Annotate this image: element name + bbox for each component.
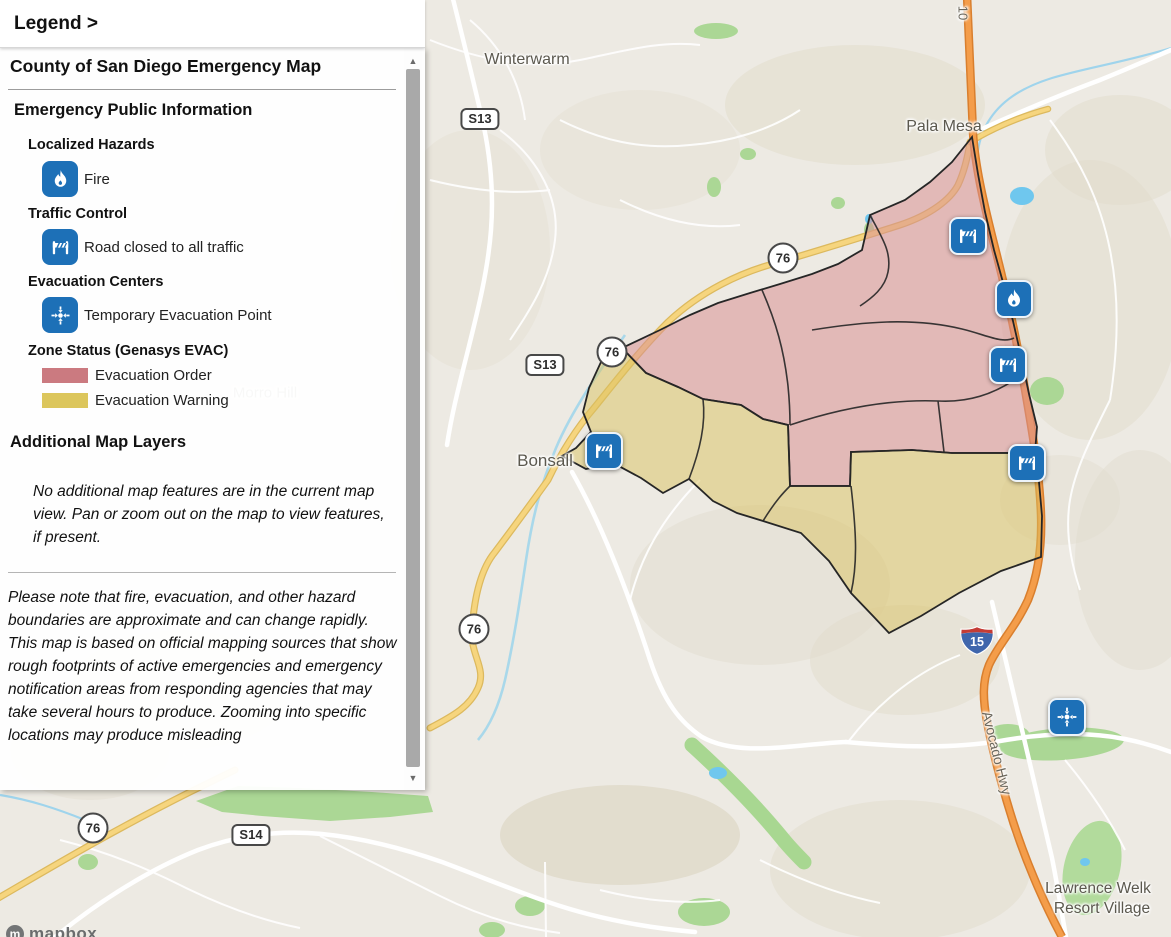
legend-title: Legend > <box>14 13 98 35</box>
svg-text:15: 15 <box>970 635 984 649</box>
legend-item-road-closed: Road closed to all traffic <box>84 239 244 256</box>
evacuation-point-icon <box>49 304 72 327</box>
road-closed-icon <box>1015 451 1039 475</box>
place-label-lawrence-welk-1: Lawrence Welk <box>1045 880 1151 898</box>
legend-map-title: County of San Diego Emergency Map <box>10 56 321 77</box>
group-localized-hazards: Localized Hazards <box>28 137 155 153</box>
fire-icon <box>1002 287 1026 311</box>
road-closed-icon <box>956 224 980 248</box>
emergency-map-app: Winterwarm Pala Mesa Bonsall Lawrence We… <box>0 0 1171 937</box>
fire-legend-marker <box>42 161 78 197</box>
interstate-15-shield: 15 <box>959 625 995 661</box>
scroll-down-arrow[interactable]: ▼ <box>404 769 422 786</box>
section-additional-layers: Additional Map Layers <box>10 433 186 452</box>
divider <box>8 89 396 90</box>
evacuation-point-icon <box>1055 705 1079 729</box>
road-closed-icon <box>592 439 616 463</box>
legend-item-evac-point: Temporary Evacuation Point <box>84 307 272 324</box>
evacuation-point-marker[interactable] <box>1048 698 1086 736</box>
group-zone-status: Zone Status (Genasys EVAC) <box>28 343 228 359</box>
road-label-fragment: 10 <box>956 6 971 20</box>
legend-item-evac-warning: Evacuation Warning <box>95 392 229 409</box>
fire-marker[interactable] <box>995 280 1033 318</box>
evacuation-warning-swatch <box>42 393 88 408</box>
divider <box>8 572 396 573</box>
legend-panel: County of San Diego Emergency Map Emerge… <box>0 48 425 790</box>
route-shield-76: 76 <box>597 337 628 368</box>
road-closed-marker-4[interactable] <box>1008 444 1046 482</box>
disclaimer-text: Please note that fire, evacuation, and o… <box>8 586 398 747</box>
mapbox-wordmark: mapbox <box>29 924 97 937</box>
group-traffic-control: Traffic Control <box>28 206 127 222</box>
route-shield-76-2: 76 <box>768 243 799 274</box>
route-shield-s14: S14 <box>231 824 270 846</box>
place-label-pala-mesa: Pala Mesa <box>906 118 982 136</box>
road-closed-icon <box>996 353 1020 377</box>
legend-item-fire: Fire <box>84 171 110 188</box>
mapbox-logo-icon: m <box>6 925 24 937</box>
place-label-bonsall: Bonsall <box>517 451 573 471</box>
fire-icon <box>49 168 72 191</box>
road-closed-legend-marker <box>42 229 78 265</box>
route-shield-76-3: 76 <box>459 614 490 645</box>
scrollbar-thumb[interactable] <box>406 69 420 767</box>
road-closed-marker[interactable] <box>949 217 987 255</box>
route-shield-76-4: 76 <box>78 813 109 844</box>
legend-item-evac-order: Evacuation Order <box>95 367 212 384</box>
scroll-up-arrow[interactable]: ▲ <box>404 52 422 69</box>
road-closed-marker-2[interactable] <box>989 346 1027 384</box>
evacuation-order-swatch <box>42 368 88 383</box>
section-public-info: Emergency Public Information <box>14 101 252 120</box>
route-shield-s13-2: S13 <box>525 354 564 376</box>
legend-toggle[interactable]: Legend > <box>0 0 425 48</box>
mapbox-attribution[interactable]: m mapbox <box>6 924 97 937</box>
road-closed-icon <box>49 236 72 259</box>
legend-scrollbar[interactable]: ▲ ▼ <box>404 48 422 790</box>
evacuation-point-legend-marker <box>42 297 78 333</box>
place-label-winterwarm: Winterwarm <box>484 51 569 69</box>
place-label-lawrence-welk-2: Resort Village <box>1054 900 1150 918</box>
road-closed-marker-3[interactable] <box>585 432 623 470</box>
route-shield-s13: S13 <box>460 108 499 130</box>
group-evacuation-centers: Evacuation Centers <box>28 274 163 290</box>
no-features-note: No additional map features are in the cu… <box>33 480 395 549</box>
